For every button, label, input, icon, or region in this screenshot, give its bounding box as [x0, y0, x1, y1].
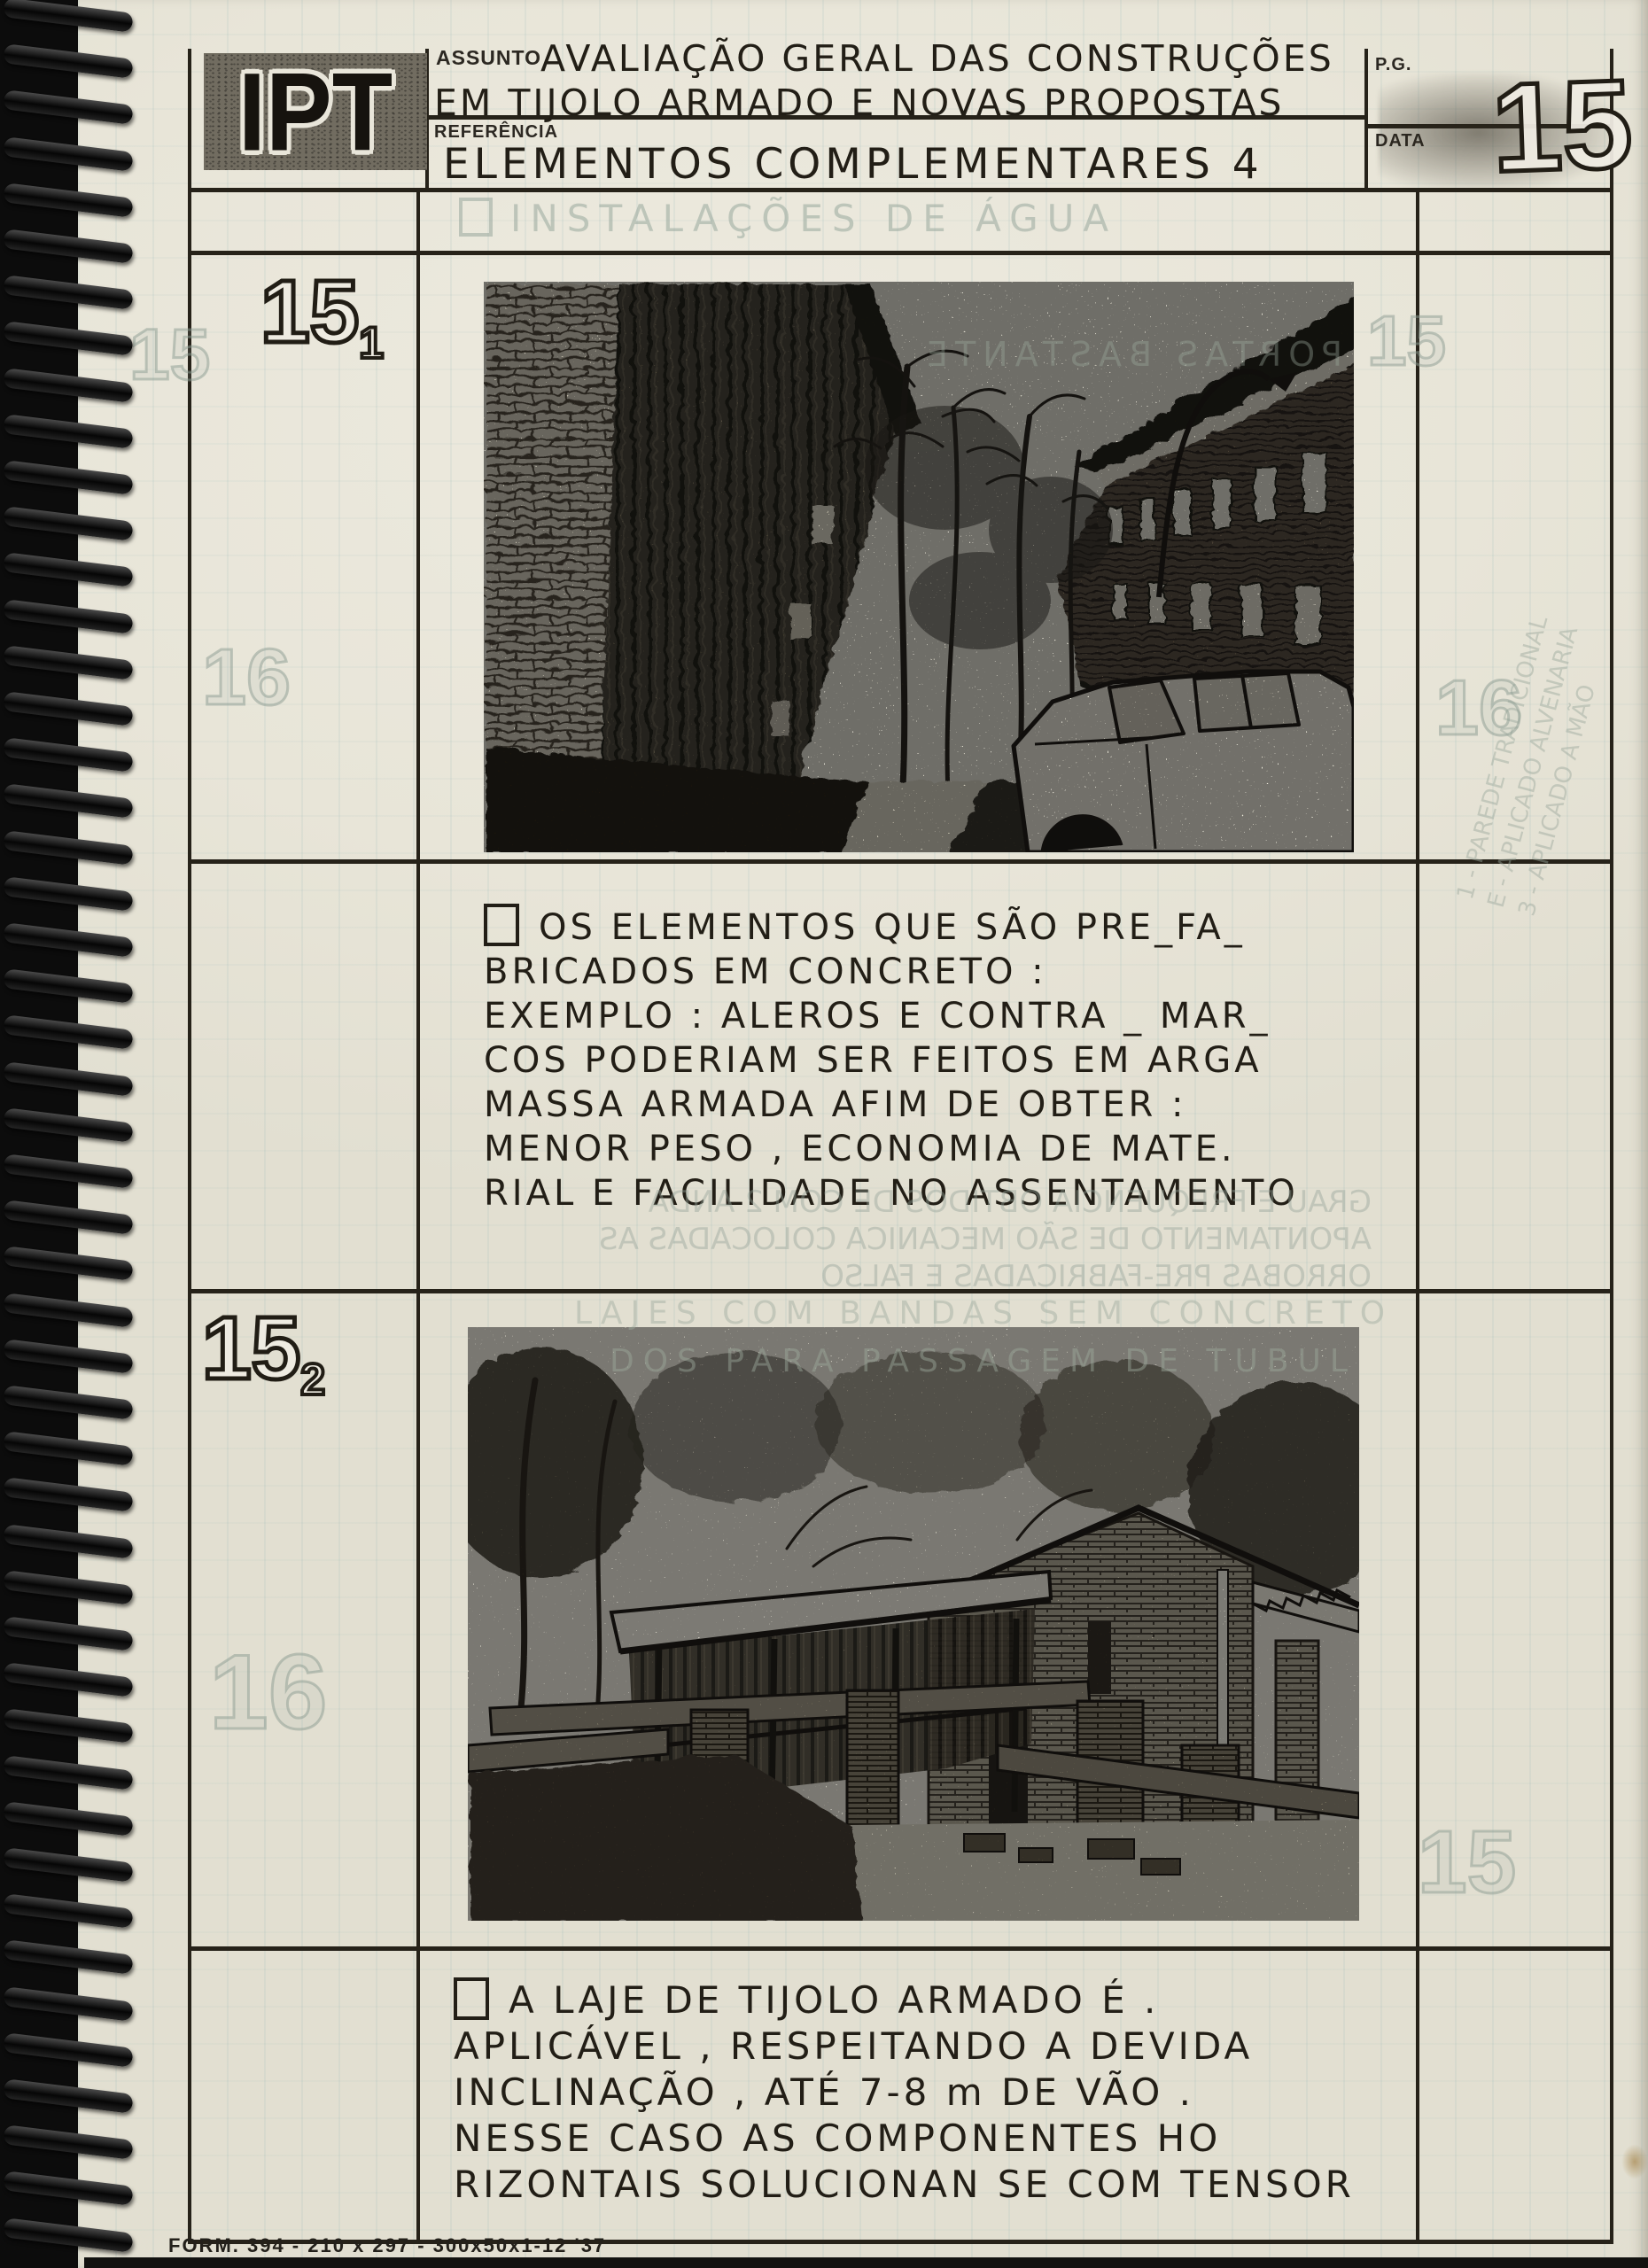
text-line: APLICÁVEL , RESPEITANDO A DEVIDA: [454, 2023, 1355, 2070]
text-line: COS PODERIAM SER FEITOS EM ARGA: [484, 1038, 1299, 1083]
ghost-number-15-left: 15: [129, 319, 210, 392]
table-column-divider: [416, 188, 420, 2244]
row1-rule: [188, 251, 1613, 255]
assunto-label: ASSUNTO: [436, 46, 541, 70]
text-line: A LAJE DE TIJOLO ARMADO É .: [509, 1978, 1159, 2022]
table-left-border: [188, 49, 191, 2244]
table-right-column-divider: [1416, 190, 1419, 2244]
ipt-logo-text: IPT: [238, 48, 393, 175]
row3-rule: [188, 1289, 1613, 1293]
form-footer-text: FORM. 394 - 210 x 297 - 300x50x1-12 '37: [168, 2234, 606, 2257]
paragraph-15-1: OS ELEMENTOS QUE SÃO PRE_FA_ BRICADOS EM…: [484, 904, 1299, 1216]
ghost-number-15-right: 15: [1367, 306, 1446, 377]
text-line: MASSA ARMADA AFIM DE OBTER :: [484, 1083, 1299, 1127]
page-number: 15: [1490, 61, 1635, 191]
text-line: INCLINAÇÃO , ATÉ 7-8 m DE VÃO .: [454, 2070, 1355, 2116]
photo-15-2: [468, 1327, 1359, 1921]
paper-stain: [1621, 2144, 1648, 2179]
paragraph-15-2: A LAJE DE TIJOLO ARMADO É . APLICÁVEL , …: [454, 1977, 1355, 2208]
scan-bottom-edge: [84, 2257, 1648, 2268]
text-line: RIZONTAIS SOLUCIONAN SE COM TENSOR: [454, 2162, 1355, 2208]
text-line: RIAL E FACILIDADE NO ASSENTAMENTO: [484, 1171, 1299, 1216]
ghost-water-title: INSTALAÇÕES DE ÁGUA: [459, 197, 1117, 240]
row4-rule: [188, 1946, 1613, 1951]
photo-15-1: [484, 282, 1354, 852]
ghost-number-15-right-low: 15: [1418, 1818, 1516, 1907]
ghost-number-16-right: 16: [1435, 669, 1522, 747]
ghost-photo2-line1: LAJES COM BANDAS SEM CONCRETO: [574, 1295, 1393, 1332]
ipt-logo-stamp: IPT: [204, 53, 427, 170]
text-line: NESSE CASO AS COMPONENTES HO: [454, 2116, 1355, 2162]
text-line: EXEMPLO : ALEROS E CONTRA _ MAR_: [484, 994, 1299, 1038]
referencia-value: ELEMENTOS COMPLEMENTARES 4: [443, 140, 1263, 189]
spiral-binding: [0, 0, 78, 2268]
scanned-notebook-page: IPT ASSUNTO AVALIAÇÃO GERAL DAS CONSTRUÇ…: [0, 0, 1648, 2268]
text-line: MENOR PESO , ECONOMIA DE MATE.: [484, 1127, 1299, 1171]
ghost-vertical-notes: 1 - PAREDE TRADICIONAL E - APLICADO ALVE…: [1450, 612, 1618, 920]
text-line: BRICADOS EM CONCRETO :: [484, 950, 1299, 994]
text-line: OS ELEMENTOS QUE SÃO PRE_FA_: [539, 907, 1246, 948]
assunto-line1: AVALIAÇÃO GERAL DAS CONSTRUÇÕES: [540, 37, 1334, 80]
checkbox-icon: [454, 1977, 489, 2020]
ghost-number-16-left: 16: [202, 638, 291, 718]
checkbox-icon: [484, 904, 519, 946]
ghost-checkbox-icon: [459, 198, 493, 237]
paper-sheet: IPT ASSUNTO AVALIAÇÃO GERAL DAS CONSTRUÇ…: [78, 0, 1648, 2268]
table-right-border: [1610, 49, 1613, 2244]
ghost-number-16-left-big: 16: [209, 1639, 327, 1745]
section-label-15-2: 152: [202, 1304, 325, 1402]
header-pg-divider: [1364, 49, 1368, 190]
assunto-line2: EM TIJOLO ARMADO E NOVAS PROPOSTAS: [434, 82, 1284, 124]
section-label-15-1: 151: [260, 268, 384, 365]
row2-rule: [188, 859, 1613, 864]
